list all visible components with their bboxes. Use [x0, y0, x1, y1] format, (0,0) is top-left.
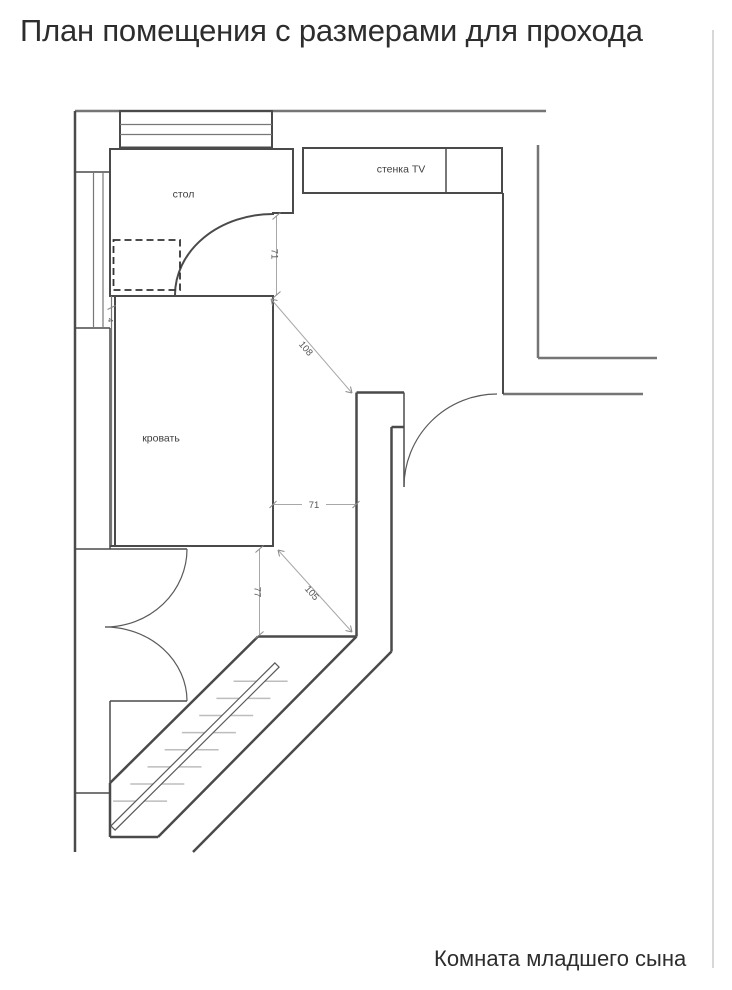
dimension-bed-to-bay: 77 — [252, 546, 264, 639]
bed — [110, 296, 273, 546]
left-inner-wall — [75, 328, 110, 793]
left-window — [75, 172, 110, 328]
dimension-diagonal-105: 105 — [278, 550, 352, 632]
bed-label: кровать — [142, 433, 180, 445]
bay-window — [110, 637, 288, 838]
svg-text:4: 4 — [106, 318, 115, 322]
top-window — [120, 111, 272, 148]
desk — [110, 149, 293, 296]
svg-text:108: 108 — [296, 339, 315, 358]
entry-door — [404, 393, 497, 488]
desk-label: стол — [173, 189, 195, 201]
adjacent-room-walls — [503, 145, 657, 394]
window-pane — [111, 663, 279, 830]
double-door-left — [105, 549, 187, 701]
svg-text:71: 71 — [269, 249, 280, 260]
floor-plan-page: План помещения с размерами для прохода — [0, 0, 732, 990]
dimension-diagonal-108: 108 — [271, 299, 352, 393]
dimension-bed-to-wall: 71 — [270, 500, 360, 511]
room-caption: Комната младшего сына — [434, 946, 686, 972]
tv-unit-label: стенка TV — [377, 164, 426, 176]
door-swing-arc — [404, 394, 497, 487]
floor-plan-drawing: 71 108 71 77 — [0, 0, 732, 990]
svg-text:77: 77 — [252, 587, 263, 598]
svg-text:105: 105 — [302, 584, 321, 603]
svg-text:71: 71 — [309, 500, 320, 511]
dimension-desk-to-bed: 71 — [269, 213, 281, 299]
